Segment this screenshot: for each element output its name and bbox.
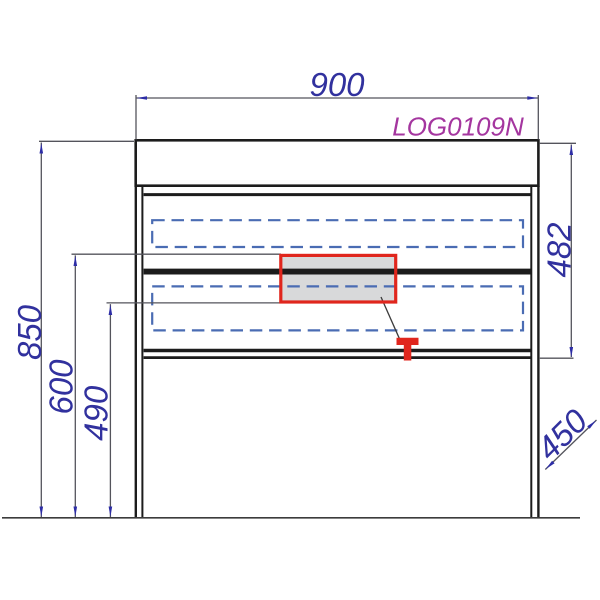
svg-text:850: 850: [11, 304, 48, 360]
svg-text:490: 490: [78, 385, 115, 441]
svg-text:900: 900: [309, 66, 365, 103]
svg-text:LOG0109N: LOG0109N: [392, 112, 524, 142]
svg-text:600: 600: [43, 359, 80, 415]
svg-text:482: 482: [540, 222, 577, 277]
